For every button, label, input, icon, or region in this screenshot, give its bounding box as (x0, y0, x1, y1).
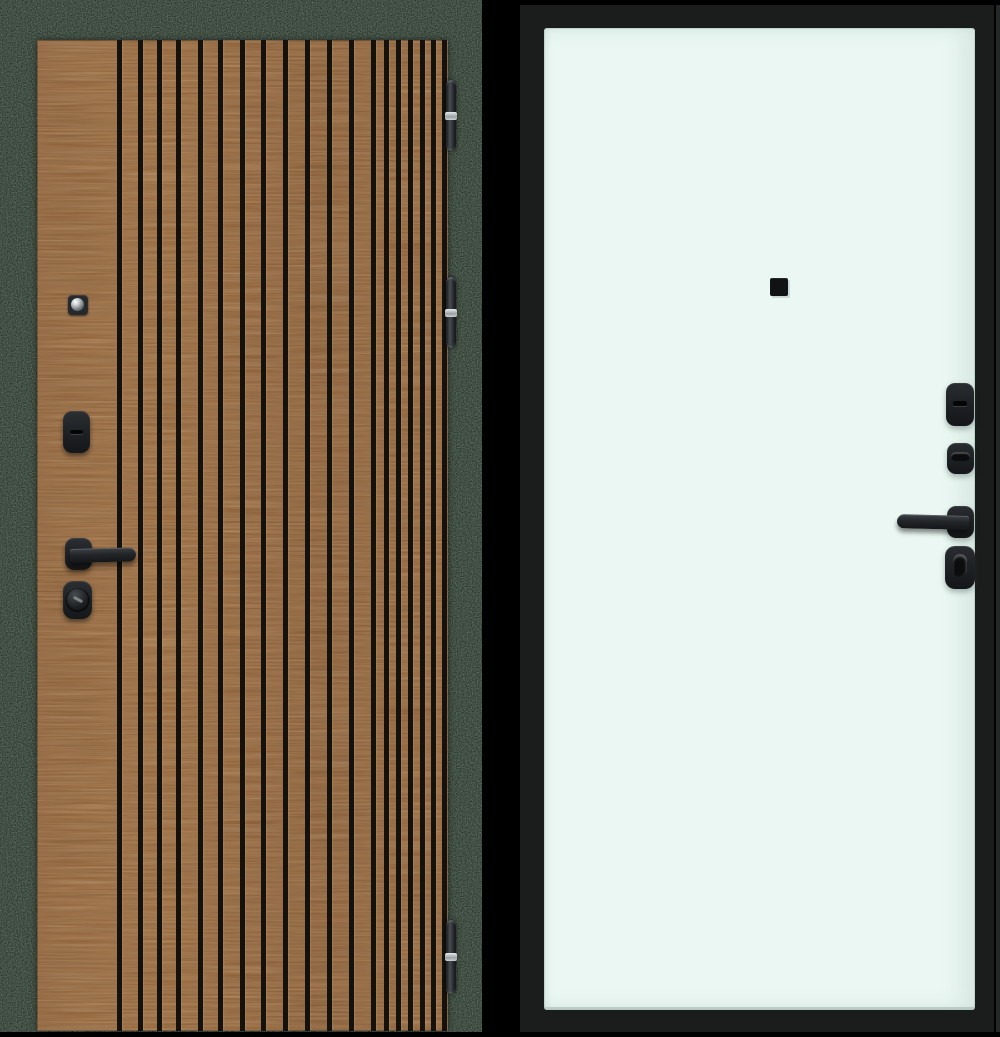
slat-groove (384, 40, 389, 1031)
keyhole-icon (953, 401, 967, 406)
thumbturn-escutcheon (947, 443, 974, 474)
hinge-metal-band (445, 309, 457, 317)
slat-groove (176, 40, 181, 1031)
thumbturn-knob (951, 452, 970, 461)
slat-groove (349, 40, 354, 1031)
slat-groove (283, 40, 288, 1031)
wood-slat-panel (37, 40, 448, 1031)
key-slot-icon (73, 596, 83, 603)
slat-groove (408, 40, 413, 1031)
slat-groove (327, 40, 332, 1031)
door-handle (897, 514, 969, 530)
door-hinge (446, 920, 456, 994)
slat-groove (261, 40, 266, 1031)
peephole-cover (770, 278, 788, 296)
slat-groove (305, 40, 310, 1031)
exterior-door-leaf (0, 0, 482, 1032)
interior-flat-panel (544, 28, 975, 1010)
hinge-metal-band (445, 953, 457, 961)
slat-groove (431, 40, 436, 1031)
door-product-photo (0, 0, 1000, 1037)
wood-grain-texture (37, 40, 448, 1031)
slat-groove (442, 40, 447, 1031)
slat-groove (198, 40, 203, 1031)
slat-groove (157, 40, 162, 1031)
slat-groove (138, 40, 143, 1031)
peephole-lens-icon (71, 298, 84, 311)
slat-grooves (37, 40, 448, 1031)
cylinder-lock-escutcheon (63, 581, 92, 619)
slat-groove (240, 40, 245, 1031)
interior-door-leaf (520, 5, 1000, 1032)
keyhole-icon (70, 430, 83, 434)
slat-groove (420, 40, 425, 1031)
lock-cylinder (65, 587, 90, 612)
slat-groove (371, 40, 376, 1031)
door-hinge (446, 80, 456, 151)
keyhole-escutcheon (946, 383, 974, 426)
door-hinge (446, 277, 456, 348)
night-lock-thumbturn (953, 554, 967, 577)
slat-groove (218, 40, 223, 1031)
night-lock-escutcheon (945, 546, 975, 589)
slat-groove (117, 40, 122, 1031)
door-handle (70, 547, 136, 563)
keyhole-escutcheon (63, 411, 90, 453)
slat-groove (396, 40, 401, 1031)
peephole (68, 295, 88, 315)
hinge-metal-band (445, 112, 457, 120)
